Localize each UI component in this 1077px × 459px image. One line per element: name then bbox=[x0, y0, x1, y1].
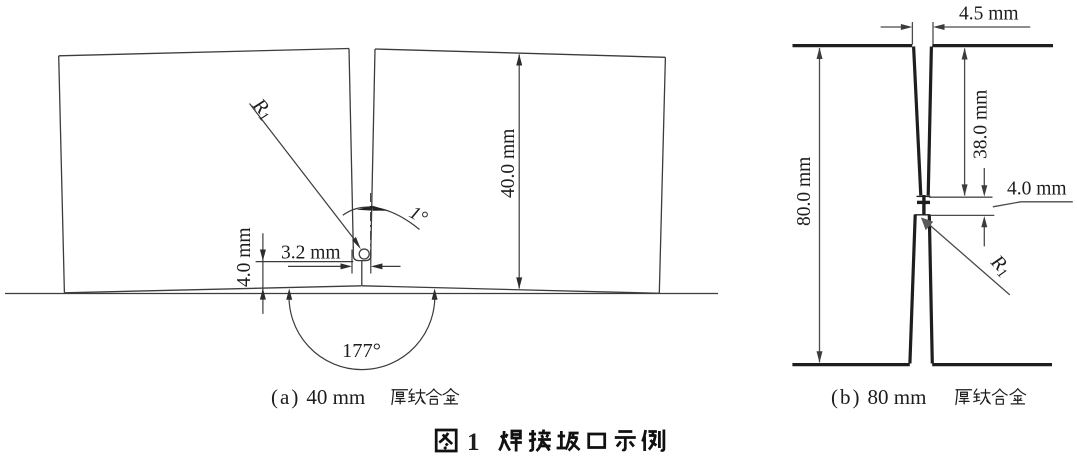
svg-text:(b)80 mm: (b)80 mm bbox=[831, 385, 926, 409]
svg-text:38.0 mm: 38.0 mm bbox=[971, 90, 992, 159]
svg-text:(a)40 mm: (a)40 mm bbox=[271, 385, 365, 409]
svg-text:4.5 mm: 4.5 mm bbox=[959, 4, 1019, 25]
svg-text:1: 1 bbox=[467, 429, 480, 456]
svg-text:3.2 mm: 3.2 mm bbox=[281, 243, 341, 264]
svg-text:40.0 mm: 40.0 mm bbox=[498, 129, 519, 198]
svg-text:80.0 mm: 80.0 mm bbox=[794, 157, 815, 226]
svg-text:4.0 mm: 4.0 mm bbox=[1007, 179, 1067, 200]
svg-text:177°: 177° bbox=[342, 340, 381, 362]
svg-text:4.0 mm: 4.0 mm bbox=[234, 227, 255, 287]
